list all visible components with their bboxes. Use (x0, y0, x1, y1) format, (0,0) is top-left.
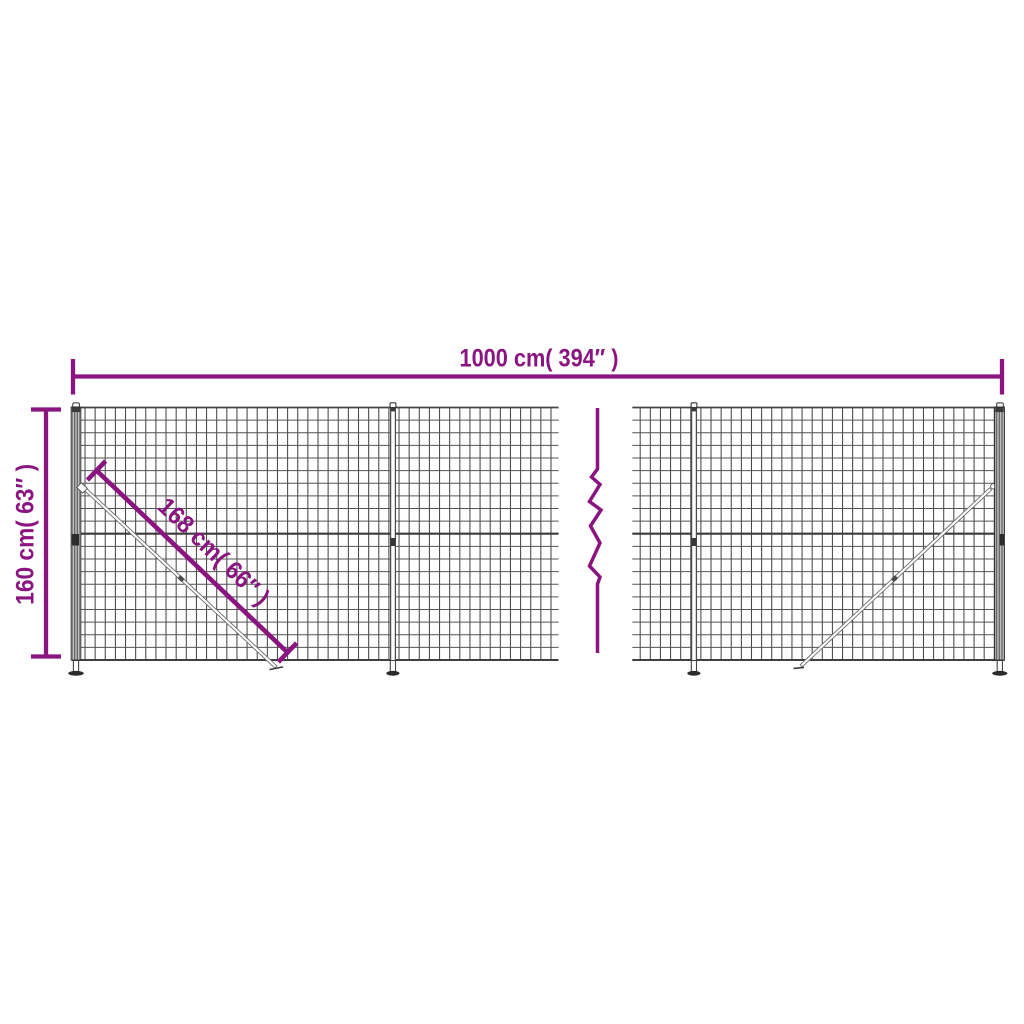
svg-text:160 cm( 63″ ): 160 cm( 63″ ) (11, 464, 39, 605)
svg-text:1000 cm( 394″ ): 1000 cm( 394″ ) (460, 344, 619, 372)
